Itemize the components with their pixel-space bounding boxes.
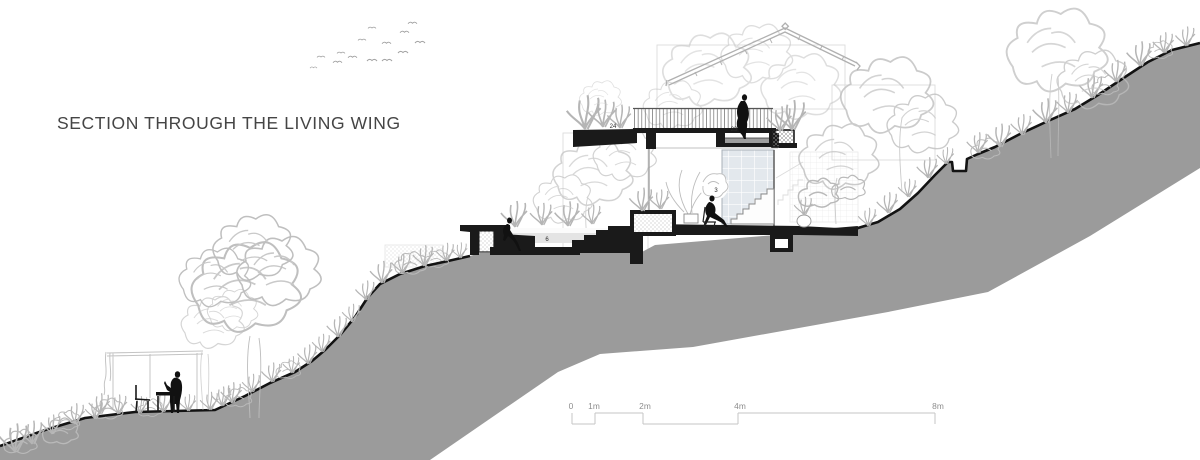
label-terrace-24: 24 [610,124,617,130]
footing-right [770,235,793,252]
roof-terrace [573,108,797,149]
section-artwork: 24 23 3 6 0 1m 2m 4m 8m [0,0,1200,460]
terrace-column [646,133,656,149]
bird-flock [310,22,425,68]
gable-roof [666,23,860,86]
scale-label-4m: 4m [734,401,746,411]
scale-label-1m: 1m [588,401,600,411]
mid-planter [630,210,676,236]
pergola [104,351,203,410]
foreground-plants [567,81,813,227]
pergola-tree [181,289,258,410]
label-roof-deck-23: 23 [731,127,738,133]
section-drawing: SECTION THROUGH THE LIVING WING [0,0,1200,460]
scale-label-2m: 2m [639,401,651,411]
scale-bar: 0 1m 2m 4m 8m [569,401,944,424]
building-section [460,23,860,264]
roof-deck-tray [716,133,779,147]
scale-label-8m: 8m [932,401,944,411]
scale-label-0: 0 [569,401,574,411]
terrace-railing [633,108,773,129]
terrace-slab [633,128,776,133]
terrace-parapet [573,129,637,147]
